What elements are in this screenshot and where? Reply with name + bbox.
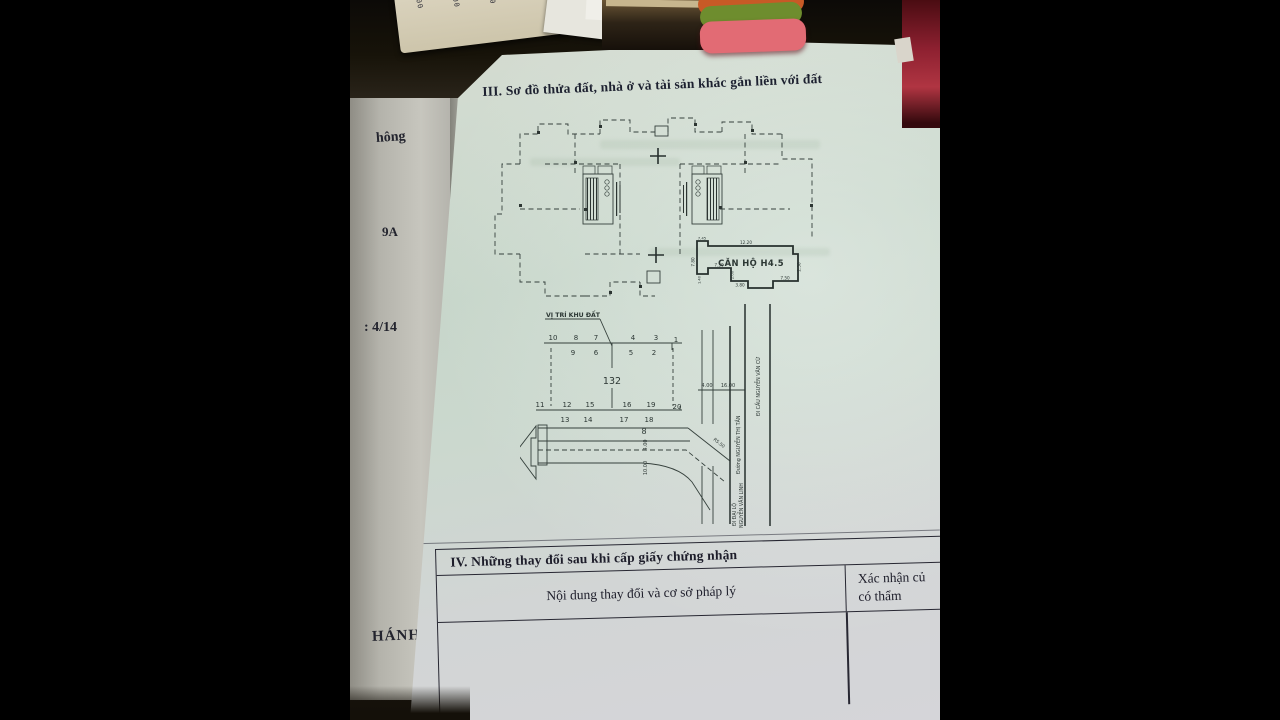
direction-label-bottom-1: ĐI ĐẠI LỘ bbox=[731, 503, 738, 526]
receipt-amount: 1.000 bbox=[411, 0, 425, 10]
street-dim-b: 16.00 bbox=[721, 383, 735, 389]
column-header-confirmation: Xác nhận củ có thẩm bbox=[845, 563, 940, 612]
dim-right: 2.50 bbox=[797, 262, 802, 272]
street-name-label: Đường NGUYỄN THỊ TẦN bbox=[734, 415, 742, 474]
lot-number: 8 bbox=[574, 334, 578, 342]
site-lines bbox=[536, 319, 682, 410]
site-plan-drawing: VỊ TRÍ KHU ĐẤT 10 8 7 bbox=[520, 298, 830, 530]
cross-marker bbox=[648, 148, 666, 263]
lot-number: 16 bbox=[623, 401, 632, 409]
dim-bottom: 3.80 bbox=[735, 283, 745, 288]
lot-number: 18 bbox=[645, 416, 654, 424]
section-iii-title: III. Sơ đồ thửa đất, nhà ở và tài sản kh… bbox=[482, 69, 882, 100]
receipt-amount: 30.000 bbox=[518, 0, 533, 2]
floor-plan-drawing: CĂN HỘ H4.5 12.20 7.45 7.80 7.30 2.00 3.… bbox=[490, 104, 830, 310]
document-photo: hông 9A : 4/14 HÁNH III. Sơ đồ thửa đất,… bbox=[350, 0, 940, 720]
road-dim-b: 10.00 bbox=[643, 461, 649, 475]
lot-number: 20 bbox=[673, 403, 682, 411]
road-arrow bbox=[520, 425, 547, 479]
lot-number: 14 bbox=[584, 416, 593, 424]
confirmation-line: có thẩm bbox=[858, 587, 902, 606]
left-page-fragment: : 4/14 bbox=[364, 320, 397, 336]
lot-number: 4 bbox=[631, 334, 636, 342]
lot-number: 7 bbox=[594, 334, 598, 342]
receipt-amount: 10.000 bbox=[482, 0, 497, 5]
stair-core-right bbox=[683, 166, 722, 224]
lot-number: 9 bbox=[571, 349, 575, 357]
road-centerline bbox=[538, 450, 725, 482]
left-page-fragment: hông bbox=[375, 129, 406, 147]
stair-core-left bbox=[583, 166, 621, 224]
lot-number: 10 bbox=[549, 334, 558, 342]
pink-object bbox=[699, 18, 806, 54]
dim-bottom-right: 7.50 bbox=[780, 276, 790, 281]
direction-label-bottom-2: NGUYỄN VĂN LINH bbox=[737, 483, 745, 528]
dim-inner: 7.30 bbox=[714, 262, 724, 267]
confirmation-line: Xác nhận củ bbox=[858, 569, 926, 588]
road-lines bbox=[538, 428, 730, 510]
street-dim-a: 4.00 bbox=[701, 383, 712, 389]
left-page-fragment: 9A bbox=[382, 224, 398, 240]
location-label: VỊ TRÍ KHU ĐẤT bbox=[546, 309, 601, 319]
lot-number: 15 bbox=[586, 401, 595, 409]
direction-label-top: ĐI CẦU NGUYỄN VĂN CỪ bbox=[754, 357, 762, 416]
receipt-amount: 38.000 bbox=[446, 0, 461, 9]
lot-number: 5 bbox=[629, 349, 633, 357]
table-empty-body bbox=[438, 610, 940, 715]
dim-top: 12.20 bbox=[740, 240, 752, 245]
dim-step: 2.00 bbox=[730, 270, 735, 279]
lot-numbers-top: 10 8 7 4 3 1 9 6 5 2 bbox=[549, 334, 679, 357]
lot-number: 17 bbox=[620, 416, 629, 424]
red-object bbox=[902, 0, 940, 128]
lot-number: 2 bbox=[652, 349, 656, 357]
lot-number: 3 bbox=[654, 334, 658, 342]
dim-left-top: 7.45 bbox=[698, 236, 707, 241]
lot-number: 6 bbox=[594, 349, 599, 357]
lot-numbers-bottom: 11 12 15 16 19 20 13 14 17 18 bbox=[536, 401, 682, 424]
lot-number: 1 bbox=[674, 336, 678, 344]
road-dim-a: 4.00 bbox=[643, 439, 649, 450]
corner-shadow bbox=[350, 686, 470, 720]
left-page-fragment: HÁNH bbox=[372, 627, 422, 646]
plan-markers bbox=[519, 123, 813, 294]
column-divider bbox=[846, 612, 850, 704]
street-lines-bold bbox=[730, 304, 770, 526]
lot-number: 19 bbox=[647, 401, 656, 409]
section-iv-table: IV. Những thay đổi sau khi cấp giấy chứn… bbox=[435, 536, 940, 720]
lot-number: 13 bbox=[561, 416, 570, 424]
lot-number-main: 132 bbox=[603, 376, 621, 387]
dim-left-low: 1.40 bbox=[698, 275, 702, 284]
lot-number: 12 bbox=[563, 401, 572, 409]
building-outline bbox=[495, 118, 812, 296]
unit-label: CĂN HỘ H4.5 bbox=[718, 257, 784, 268]
dim-left: 7.80 bbox=[691, 257, 696, 267]
street-labels: ĐI CẦU NGUYỄN VĂN CỪ Đường NGUYỄN THỊ TẦ… bbox=[731, 357, 762, 528]
lot-number: 11 bbox=[536, 401, 545, 409]
photo-frame: hông 9A : 4/14 HÁNH III. Sơ đồ thửa đất,… bbox=[0, 0, 1280, 720]
